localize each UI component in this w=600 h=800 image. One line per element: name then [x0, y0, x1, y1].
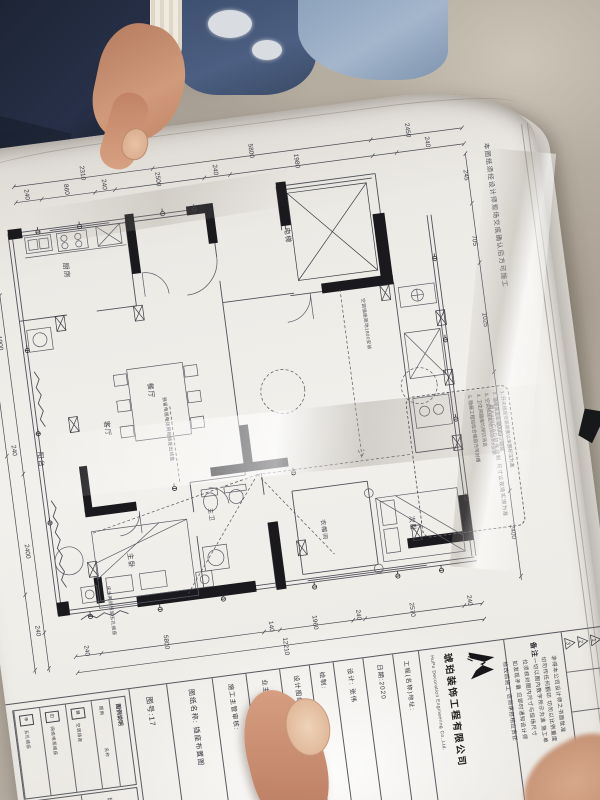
room-label-balcony: 阳台: [35, 451, 47, 468]
legend-item-name: 空调插座: [74, 723, 83, 743]
company-logo: [465, 647, 499, 685]
walls: [6, 167, 477, 623]
revision-triangle: 1: [589, 633, 600, 646]
legend-col-name: 名称: [103, 747, 110, 757]
company-name-cn: 琥珀装饰工程有限公司: [441, 652, 470, 768]
construction-supervisor-label: 施工主管审核:: [227, 683, 242, 731]
wall-fill: [6, 163, 477, 619]
svg-text:2310: 2310: [78, 165, 87, 181]
svg-text:240: 240: [33, 625, 41, 637]
remark-title: 备注: [528, 641, 540, 658]
room-label-bath: 主卫: [206, 507, 217, 522]
room-label-kitchen: 厨房: [60, 262, 72, 279]
room-label-dining: 餐厅: [145, 382, 157, 399]
svg-text:2500: 2500: [153, 172, 162, 188]
svg-text:240: 240: [423, 136, 431, 148]
svg-text:860: 860: [62, 184, 70, 196]
svg-text:240: 240: [22, 189, 30, 201]
svg-text:705: 705: [470, 235, 478, 247]
socket-legend-symbol: ⊟: [45, 710, 60, 723]
paper-sheet: 2310 5800 2450 240 860 240 2500 240 1980…: [0, 79, 600, 800]
legend-item-name: 网络电视插座: [49, 726, 59, 756]
drawing-name: 图纸名称: 插座布置图: [186, 688, 206, 767]
legend-col-symbol: 图例: [97, 706, 104, 716]
drawing-number: 图号:17: [144, 696, 159, 728]
svg-text:12210: 12210: [281, 637, 290, 656]
svg-text:240: 240: [465, 595, 473, 607]
revision-triangle: 2: [576, 635, 589, 648]
svg-text:1980: 1980: [292, 153, 301, 169]
svg-text:2570: 2570: [407, 602, 416, 618]
svg-text:240: 240: [10, 445, 18, 457]
svg-text:5800: 5800: [246, 143, 255, 159]
room-label-living: 客厅: [101, 420, 113, 437]
designer-label: 设计: 张伟: [346, 667, 360, 703]
svg-text:240: 240: [100, 179, 108, 191]
date-label: 日期:2020: [375, 664, 389, 701]
socket-legend-symbol: ⊕: [19, 714, 34, 727]
legend-table: ⊕ 五孔插座 ⊟ 网络电视插座 ⊠ 空调插座 图例 名称 图例说明: [12, 696, 137, 800]
socket-legend-symbol: ⊠: [70, 707, 85, 720]
svg-text:140: 140: [267, 621, 275, 633]
room-label-master: 主卧: [125, 552, 137, 569]
svg-text:2450: 2450: [403, 123, 412, 139]
revision-triangle: 3: [563, 636, 576, 649]
jeans-rip-patch: [252, 40, 282, 60]
note-box: 1. 开关插座安装高度以本图标注为准 2. 插座底盒距地300mm暗装 3. 空…: [405, 384, 527, 538]
draftsman-label: 绘制:: [318, 671, 329, 690]
svg-text:3: 3: [564, 642, 570, 646]
svg-text:1960: 1960: [310, 615, 319, 631]
dashed-guides: [64, 278, 460, 605]
svg-text:240: 240: [354, 609, 362, 621]
legend-title: 图例说明: [114, 703, 125, 726]
room-label-elevator: 电梯: [282, 227, 294, 244]
project-address-label: 工程(名称)地址:: [402, 660, 418, 711]
svg-text:1900: 1900: [0, 336, 4, 352]
svg-text:1: 1: [590, 638, 596, 642]
svg-text:1025: 1025: [480, 312, 489, 328]
legend-item-name: 五孔插座: [23, 730, 32, 750]
svg-text:2: 2: [577, 640, 583, 644]
svg-text:2400: 2400: [23, 544, 32, 560]
furniture: [12, 184, 470, 615]
svg-text:240: 240: [82, 645, 90, 657]
jeans-rip-patch: [208, 10, 252, 38]
svg-text:240: 240: [211, 164, 219, 176]
svg-text:245: 245: [461, 169, 469, 181]
room-label-bedroom2: 次卧: [406, 515, 418, 532]
svg-text:5800: 5800: [162, 634, 171, 650]
photo-scene: 2310 5800 2450 240 860 240 2500 240 1980…: [0, 0, 600, 800]
